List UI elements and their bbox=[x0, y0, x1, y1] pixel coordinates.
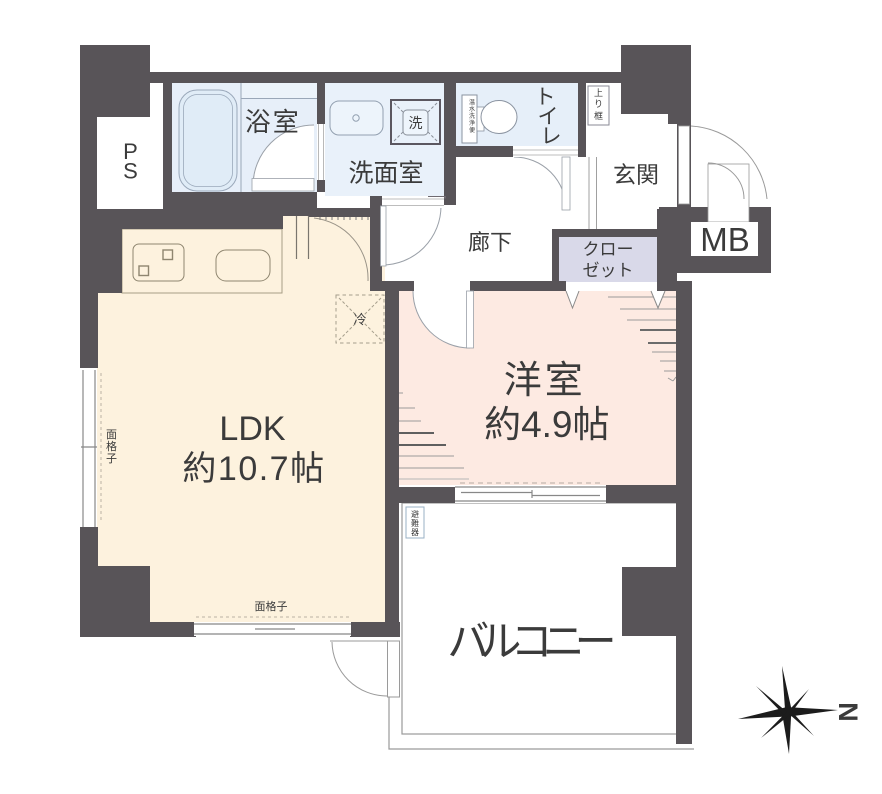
svg-text:洗面室: 洗面室 bbox=[348, 160, 423, 188]
svg-text:LDK: LDK bbox=[219, 410, 285, 448]
svg-text:器: 器 bbox=[411, 528, 419, 537]
svg-text:水: 水 bbox=[469, 105, 475, 113]
svg-text:冷: 冷 bbox=[353, 312, 366, 327]
svg-text:上: 上 bbox=[594, 88, 603, 98]
svg-text:洋室: 洋室 bbox=[504, 360, 586, 402]
svg-text:面: 面 bbox=[106, 429, 117, 441]
svg-text:レ: レ bbox=[541, 125, 562, 148]
svg-text:バルコニー: バルコニー bbox=[447, 618, 612, 665]
svg-text:クロー: クロー bbox=[583, 240, 634, 259]
svg-text:面格子: 面格子 bbox=[255, 599, 288, 613]
svg-text:MB: MB bbox=[700, 221, 750, 258]
svg-text:約10.7帖: 約10.7帖 bbox=[182, 450, 325, 488]
svg-text:り: り bbox=[594, 99, 603, 109]
svg-text:框: 框 bbox=[594, 110, 603, 121]
svg-text:温: 温 bbox=[469, 98, 475, 106]
svg-text:避: 避 bbox=[411, 509, 419, 519]
svg-text:約4.9帖: 約4.9帖 bbox=[484, 404, 609, 445]
svg-text:玄関: 玄関 bbox=[613, 162, 659, 188]
svg-text:難: 難 bbox=[411, 518, 419, 528]
svg-text:洗: 洗 bbox=[469, 112, 475, 120]
svg-text:浴室: 浴室 bbox=[245, 107, 301, 137]
svg-text:格: 格 bbox=[106, 439, 117, 453]
svg-text:ゼット: ゼット bbox=[583, 261, 634, 280]
svg-text:子: 子 bbox=[106, 452, 117, 465]
svg-text:N: N bbox=[833, 702, 863, 722]
svg-text:S: S bbox=[123, 159, 138, 184]
svg-text:廊下: 廊下 bbox=[468, 230, 512, 255]
svg-text:便: 便 bbox=[469, 126, 475, 134]
svg-text:洗: 洗 bbox=[409, 115, 423, 131]
svg-text:浄: 浄 bbox=[469, 119, 475, 127]
